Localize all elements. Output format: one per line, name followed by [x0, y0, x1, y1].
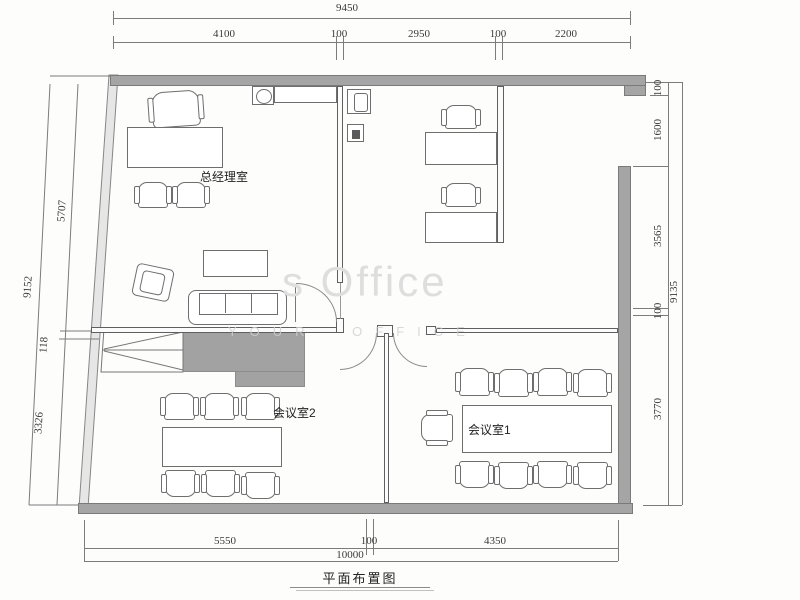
sofa	[188, 290, 287, 325]
copier-inner	[354, 93, 368, 112]
utility-box-fill	[352, 130, 360, 139]
meeting-chair	[577, 369, 608, 397]
meeting-chair	[459, 368, 490, 396]
staircase	[101, 328, 183, 372]
dim-tick	[618, 520, 619, 561]
dim-tick	[630, 36, 631, 49]
title-underline	[290, 587, 430, 588]
dim-top-seg3: 2950	[389, 28, 449, 40]
office-chair	[445, 183, 477, 207]
dim-line-right-total	[682, 82, 683, 505]
sofa-cushion-divider	[225, 293, 226, 313]
office-desk	[425, 212, 497, 243]
copier-cabinet	[347, 89, 371, 114]
wardrobe-cabinet	[274, 86, 337, 103]
meeting-chair	[537, 461, 568, 488]
meeting-room2-label: 会议室2	[273, 404, 316, 421]
dim-top-seg1: 4100	[194, 28, 254, 40]
meeting-chair	[245, 393, 276, 420]
dim-right-seg5: 3770	[652, 389, 664, 429]
meeting-chair	[537, 368, 568, 396]
dim-right-seg2: 1600	[652, 110, 664, 150]
dim-tick	[84, 520, 85, 561]
desk-partition-wall	[497, 86, 504, 243]
dim-bottom-seg2: 100	[354, 535, 384, 547]
dim-line-bottom-total	[84, 561, 618, 562]
bottom-wall	[78, 503, 633, 514]
utility-box	[347, 124, 364, 142]
guest-chair	[176, 182, 206, 208]
left-wall	[79, 75, 118, 508]
meeting-chair	[498, 462, 529, 489]
dim-bottom-seg1: 5550	[195, 535, 255, 547]
dim-tick	[643, 505, 682, 506]
title-underline-shadow	[296, 590, 434, 591]
dim-right-seg4: 100	[652, 291, 664, 331]
dim-bottom-seg3: 4350	[465, 535, 525, 547]
meeting-chair	[165, 470, 196, 497]
dim-top-seg4: 100	[483, 28, 513, 40]
dim-tick	[633, 166, 668, 167]
dim-top-seg2: 100	[324, 28, 354, 40]
meeting-rooms-partition	[384, 333, 389, 503]
meeting-table-2	[162, 427, 282, 467]
water-dispenser-cabinet	[252, 86, 274, 105]
dim-right-total: 9135	[668, 272, 680, 312]
meeting-chair	[577, 462, 608, 489]
watermark-logo-text: s Office	[282, 258, 448, 306]
meeting-chair	[205, 470, 236, 497]
guest-chair	[138, 182, 168, 208]
meeting-chair	[164, 393, 195, 420]
sofa-cushion-divider	[251, 293, 252, 313]
meeting-room1-label: 会议室1	[468, 421, 511, 438]
dispenser-circle	[256, 89, 272, 104]
dim-top-seg5: 2200	[536, 28, 596, 40]
service-core-step	[235, 371, 305, 387]
meeting-chair	[498, 369, 529, 397]
office-partition-wall	[337, 86, 343, 283]
coffee-table	[203, 250, 268, 277]
meeting-chair	[245, 472, 276, 499]
dim-tick	[630, 11, 631, 25]
floor-plan-canvas: 总经理室 会议室2 会议室1 9450 4100 100 2950 100 22…	[0, 0, 800, 600]
armchair-seat	[139, 270, 166, 296]
drawing-title: 平面布置图	[290, 568, 430, 587]
office-chair	[445, 105, 477, 129]
watermark-slogan-text: YOUR OFFICE	[228, 324, 478, 339]
dim-right-seg1: 100	[652, 68, 664, 108]
dim-top-total: 9450	[317, 2, 377, 14]
dim-bottom-total: 10000	[320, 549, 380, 561]
office-desk	[425, 132, 497, 165]
manager-office-label: 总经理室	[200, 168, 248, 185]
top-wall	[110, 75, 646, 86]
right-wall	[618, 166, 631, 514]
dim-right-seg3: 3565	[652, 216, 664, 256]
dim-tick	[113, 11, 114, 25]
executive-chair	[151, 89, 201, 128]
dim-line-top-total	[113, 18, 630, 19]
meeting-chair	[204, 393, 235, 420]
top-right-wall-stub	[624, 85, 646, 96]
sofa-cushions	[199, 293, 278, 315]
dim-tick	[113, 36, 114, 49]
meeting-chair	[459, 461, 490, 488]
meeting-chair	[421, 414, 453, 442]
dim-line-top-segments	[113, 42, 630, 43]
manager-desk	[127, 127, 223, 168]
